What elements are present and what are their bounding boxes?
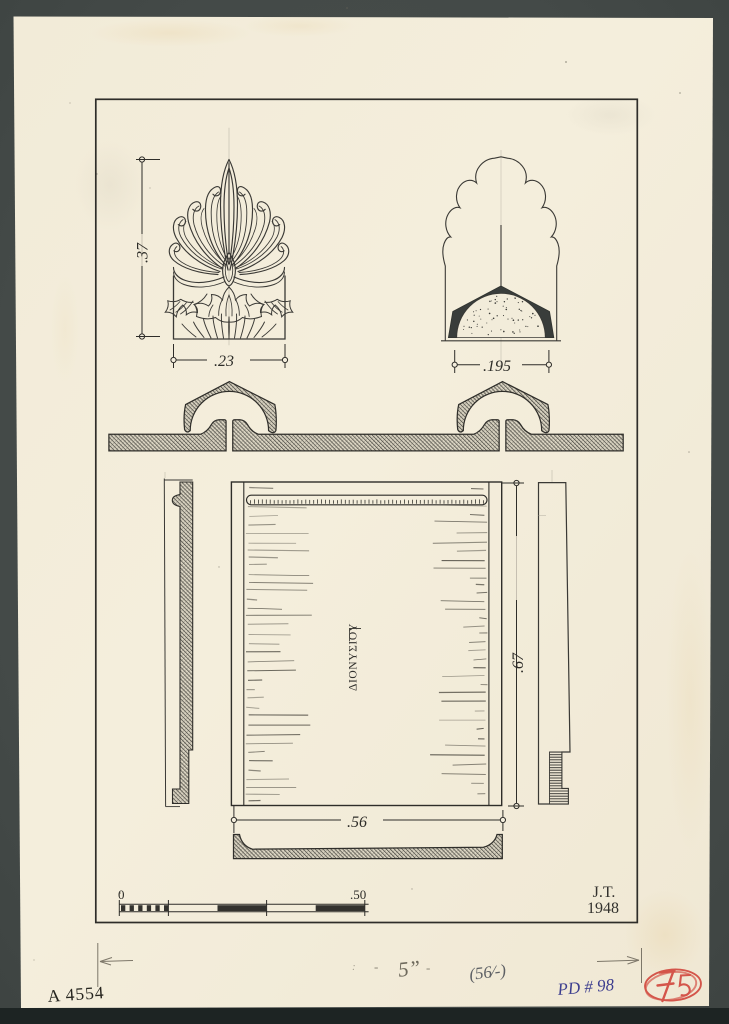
svg-text:-: - [426, 960, 430, 975]
svg-text:.37: .37 [135, 242, 152, 263]
svg-text::: : [352, 961, 356, 973]
svg-text:.56: .56 [347, 814, 367, 831]
svg-text:-: - [374, 959, 378, 974]
svg-text:.50: .50 [350, 887, 366, 902]
svg-text:J.T.: J.T. [593, 884, 616, 901]
svg-text:1948: 1948 [587, 900, 619, 917]
svg-text:.195: .195 [483, 358, 511, 375]
svg-text:.23: .23 [214, 353, 234, 370]
svg-text:0: 0 [118, 887, 125, 902]
svg-text:.67: .67 [510, 652, 527, 673]
svg-text:5”: 5” [397, 955, 422, 981]
svg-text:A 4554: A 4554 [47, 982, 105, 1006]
